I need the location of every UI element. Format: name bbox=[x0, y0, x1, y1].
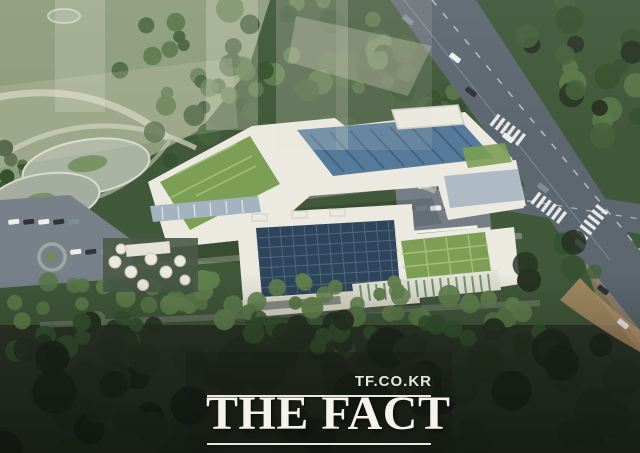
watermark-brand-logo: THE FACT bbox=[206, 390, 434, 438]
rooftop-unit bbox=[252, 214, 267, 221]
rooftop-unit bbox=[292, 211, 307, 218]
rooftop-unit bbox=[330, 209, 345, 216]
parasol-terrace bbox=[103, 238, 198, 292]
watermark-rule-bottom bbox=[207, 443, 431, 445]
news-photo-aerial-rendering: TF.CO.KR THE FACT bbox=[0, 0, 640, 453]
watermark-panel: TF.CO.KR THE FACT bbox=[186, 352, 452, 453]
